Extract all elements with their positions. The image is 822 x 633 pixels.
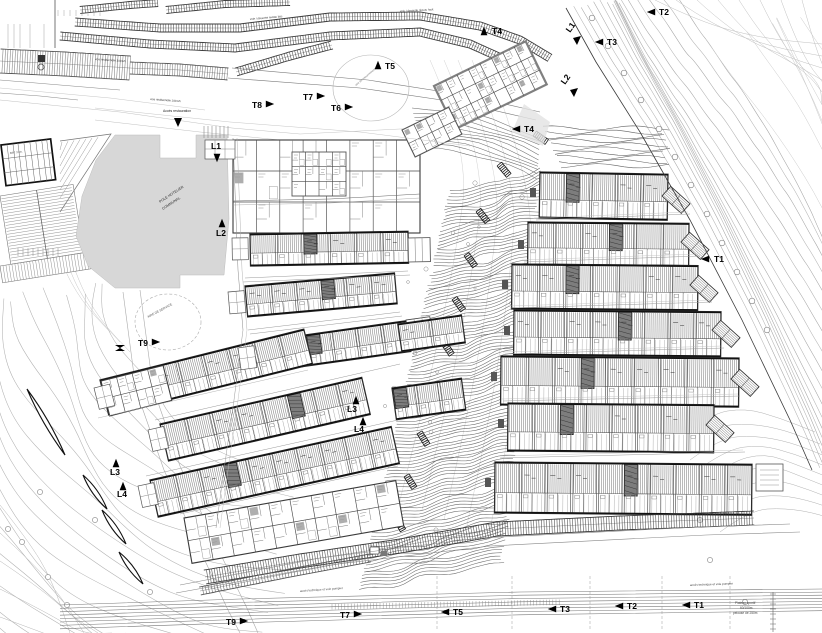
svg-text:T4: T4 [524,124,534,134]
svg-text:T5: T5 [385,61,395,71]
svg-text:T9: T9 [226,617,236,627]
svg-text:Accès restauration: Accès restauration [163,109,191,113]
svg-text:T5: T5 [453,607,463,617]
svg-text:L1: L1 [211,141,221,151]
svg-text:Plateau sportif: Plateau sportif [735,601,755,605]
svg-text:T7: T7 [303,92,313,102]
svg-text:T6: T6 [331,103,341,113]
svg-text:T8: T8 [252,100,262,110]
svg-text:60/100m: 60/100m [740,606,753,610]
svg-text:T4: T4 [492,26,502,36]
svg-text:L3: L3 [110,467,120,477]
svg-text:T9: T9 [138,338,148,348]
svg-text:T2: T2 [627,601,637,611]
svg-text:L4: L4 [117,489,127,499]
svg-text:T3: T3 [560,604,570,614]
svg-text:T7: T7 [340,610,350,620]
svg-text:pelouse de 250m: pelouse de 250m [733,611,758,615]
svg-text:T3: T3 [607,37,617,47]
svg-text:L2: L2 [216,228,226,238]
svg-text:T1: T1 [714,254,724,264]
svg-text:T1: T1 [694,600,704,610]
svg-text:L4: L4 [354,424,364,434]
svg-text:T2: T2 [659,7,669,17]
svg-text:L3: L3 [347,404,357,414]
